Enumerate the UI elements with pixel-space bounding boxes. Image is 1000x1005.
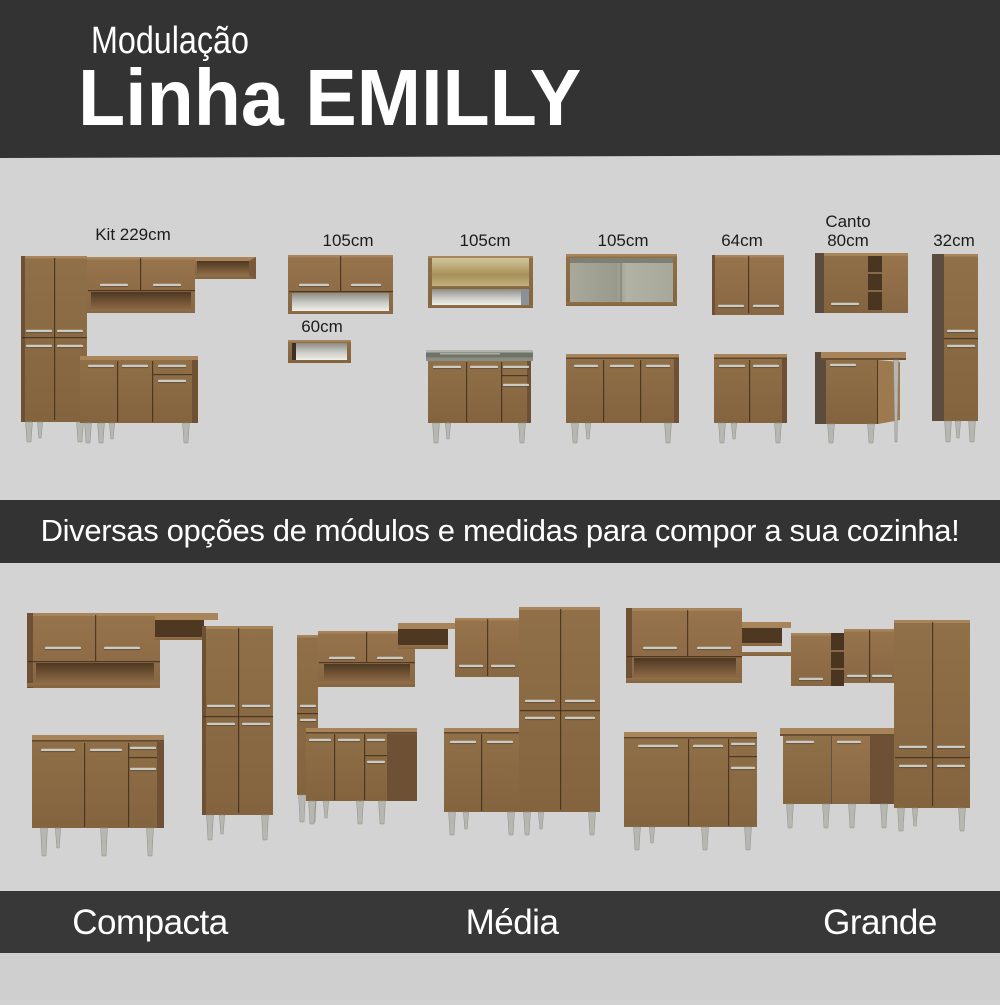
svg-text:80cm: 80cm bbox=[827, 231, 869, 250]
svg-text:105cm: 105cm bbox=[459, 231, 510, 250]
svg-text:32cm: 32cm bbox=[933, 231, 975, 250]
svg-text:Kit 229cm: Kit 229cm bbox=[95, 225, 171, 244]
svg-text:Linha EMILLY: Linha EMILLY bbox=[78, 53, 581, 143]
svg-text:Diversas opções de módulos e m: Diversas opções de módulos e medidas par… bbox=[41, 513, 960, 548]
svg-text:105cm: 105cm bbox=[597, 231, 648, 250]
svg-text:60cm: 60cm bbox=[301, 317, 343, 336]
svg-text:Grande: Grande bbox=[823, 903, 937, 942]
svg-text:Média: Média bbox=[466, 903, 560, 942]
svg-text:Compacta: Compacta bbox=[72, 903, 229, 942]
svg-text:Canto: Canto bbox=[825, 212, 870, 231]
svg-text:64cm: 64cm bbox=[721, 231, 763, 250]
svg-text:105cm: 105cm bbox=[322, 231, 373, 250]
